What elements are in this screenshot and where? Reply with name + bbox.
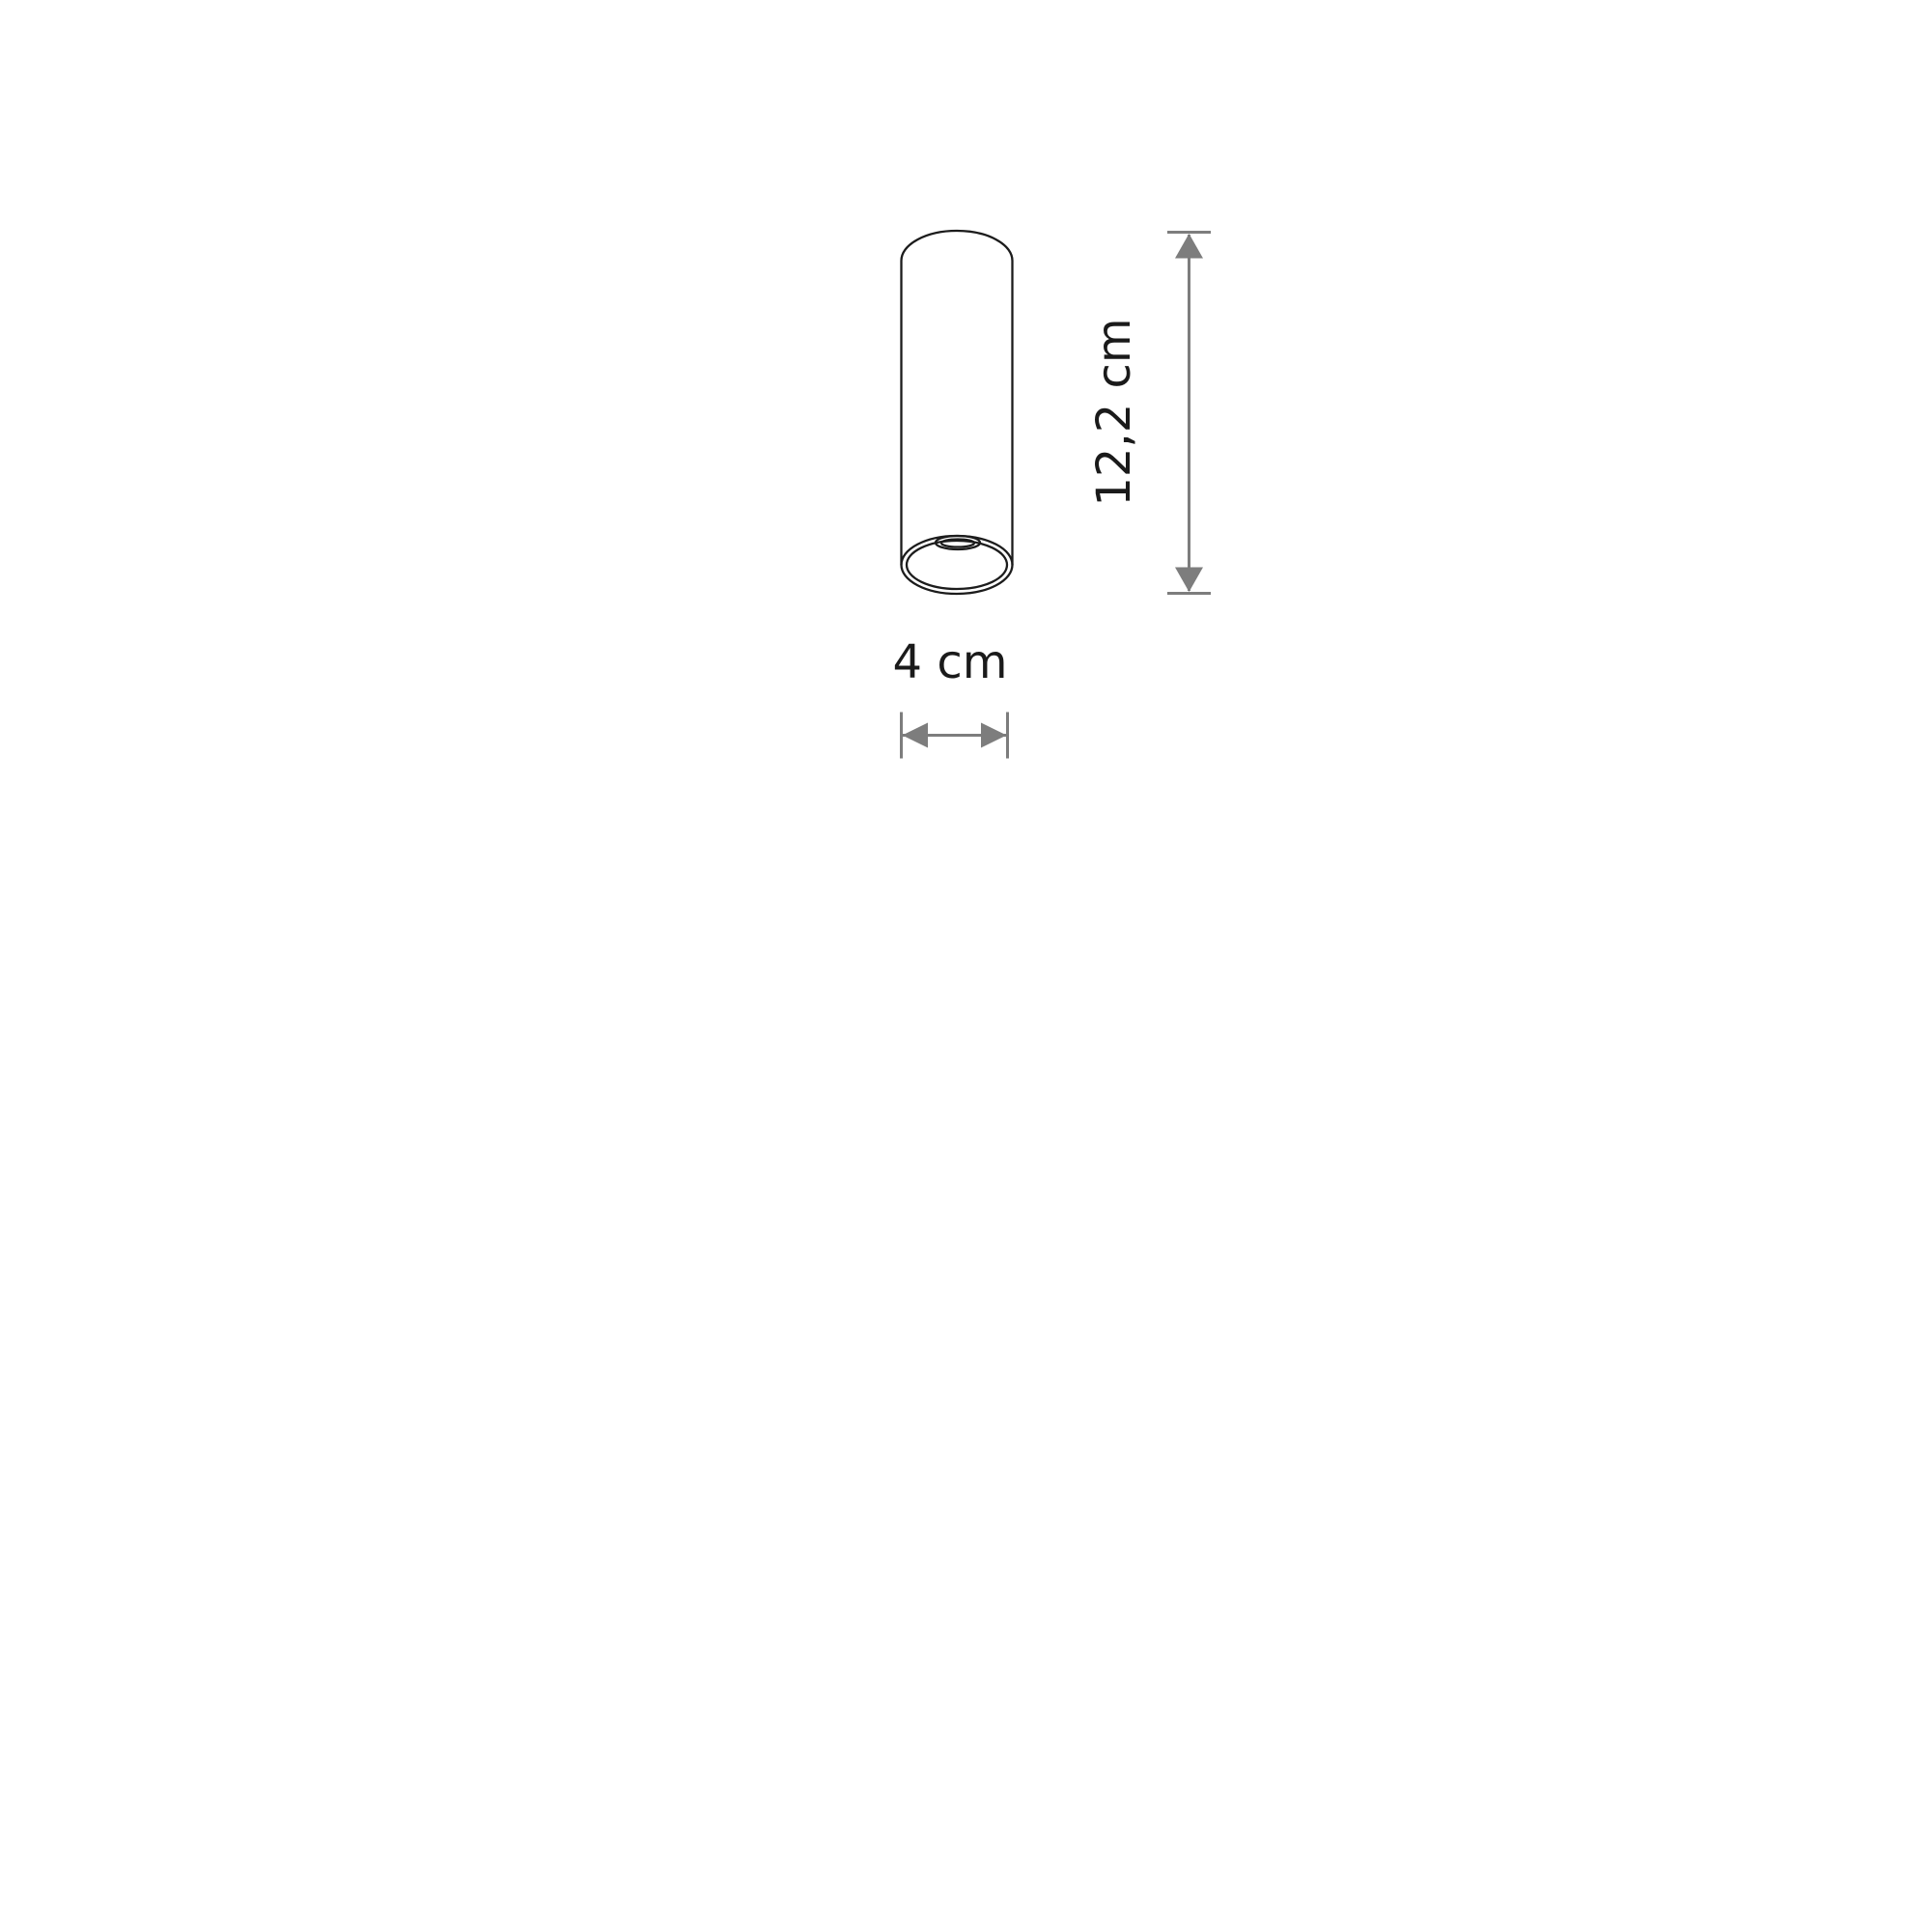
technical-drawing-canvas: 12,2 cm 4 cm — [0, 0, 1932, 1932]
cylinder-body-outline — [901, 231, 1012, 565]
arrow-down-icon — [1175, 568, 1203, 593]
arrow-left-icon — [903, 723, 929, 748]
height-dimension: 12,2 cm — [1087, 233, 1211, 594]
width-dimension: 4 cm — [893, 635, 1008, 759]
page-background: 12,2 cm 4 cm — [0, 0, 1932, 1932]
height-dimension-label: 12,2 cm — [1087, 318, 1141, 506]
cylinder-bottom-rim-outer — [902, 536, 1013, 594]
width-dimension-label: 4 cm — [893, 635, 1008, 689]
arrow-up-icon — [1175, 234, 1203, 259]
cylinder-luminaire-drawing — [901, 231, 1012, 594]
arrow-right-icon — [981, 723, 1007, 748]
